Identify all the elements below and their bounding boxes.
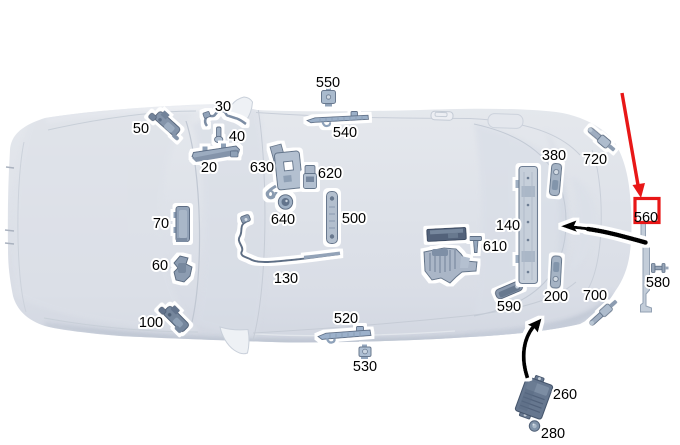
svg-text:20: 20 [201, 160, 217, 176]
svg-text:580: 580 [646, 275, 670, 291]
svg-text:380: 380 [542, 148, 566, 164]
svg-text:500: 500 [342, 211, 366, 227]
svg-text:640: 640 [271, 212, 295, 228]
svg-text:50: 50 [133, 121, 149, 137]
svg-text:30: 30 [215, 99, 231, 115]
svg-text:200: 200 [544, 289, 568, 305]
svg-text:620: 620 [318, 166, 342, 182]
svg-text:260: 260 [553, 387, 577, 403]
svg-text:530: 530 [353, 359, 377, 375]
svg-text:630: 630 [250, 160, 274, 176]
svg-text:550: 550 [316, 75, 340, 91]
svg-text:60: 60 [152, 258, 168, 274]
svg-text:610: 610 [483, 239, 507, 255]
svg-text:700: 700 [583, 288, 607, 304]
svg-text:100: 100 [139, 315, 163, 331]
svg-text:560: 560 [634, 210, 658, 226]
svg-text:540: 540 [333, 125, 357, 141]
svg-text:40: 40 [229, 129, 245, 145]
svg-text:140: 140 [496, 218, 520, 234]
svg-text:720: 720 [583, 152, 607, 168]
svg-text:590: 590 [497, 299, 521, 315]
svg-text:520: 520 [334, 311, 358, 327]
svg-text:70: 70 [153, 216, 169, 232]
svg-text:280: 280 [541, 426, 565, 442]
svg-text:130: 130 [274, 271, 298, 287]
